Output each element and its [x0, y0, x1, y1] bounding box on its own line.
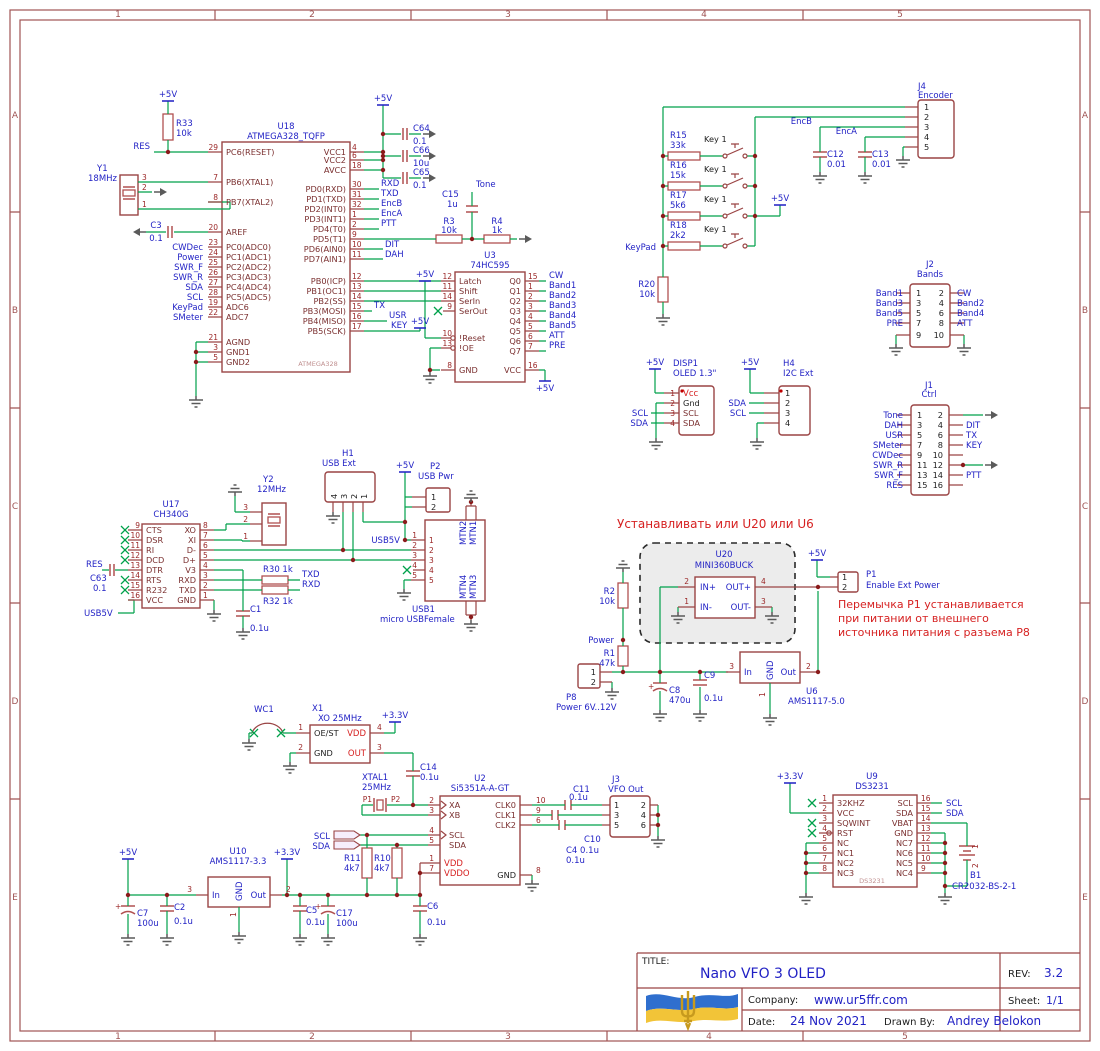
schematic-label: SDA [683, 418, 700, 428]
schematic-label: 2 [352, 220, 357, 229]
schematic-label: C2 [174, 903, 185, 913]
schematic-label: U6 [806, 687, 818, 697]
schematic-label: 2 [806, 662, 811, 671]
schematic-label: Key 1 [704, 164, 727, 174]
schematic-label: +3.3V [382, 711, 409, 721]
ukraine-flag-logo [646, 991, 738, 1028]
schematic-label: CWDec [172, 243, 203, 253]
schematic-label: 10k [441, 226, 457, 236]
schematic-label: ATT [549, 331, 565, 341]
schematic-label: 15 [921, 804, 931, 813]
schematic-label: REV: [1008, 969, 1031, 980]
schematic-label: SQWINT [837, 818, 871, 828]
schematic-label: 8 [939, 318, 944, 328]
schematic-label: PC4(ADC4) [226, 282, 271, 292]
schematic-label: RES [886, 481, 903, 491]
schematic-label: PC2(ADC2) [226, 262, 271, 272]
schematic-label: P1 [363, 795, 373, 804]
schematic-label: SCL [730, 409, 746, 419]
schematic-label: 2 [939, 288, 944, 298]
schematic-label: 22 [208, 308, 218, 317]
schematic-label: 1 [971, 844, 980, 849]
schematic-label: SerOut [459, 306, 488, 316]
schematic-label: PB0(ICP) [311, 276, 346, 286]
schematic-label: 100u [137, 919, 159, 929]
schematic-label: 3 [412, 551, 417, 560]
schematic-label: 18MHz [88, 174, 118, 184]
schematic-label: 14 [933, 470, 943, 480]
schematic-label: 9 [536, 806, 541, 815]
schematic-label: 3 [142, 173, 147, 182]
schematic-label: GND [235, 881, 245, 901]
schematic-label: 5 [917, 430, 922, 440]
resistor-r33 [163, 114, 173, 140]
schematic-label: PC6(RESET) [226, 147, 275, 157]
schematic-label: 24 Nov 2021 [790, 1014, 867, 1028]
schematic-label: DISP1 [673, 359, 698, 369]
schematic-label: C10 [584, 835, 601, 845]
schematic-label: GND [894, 828, 913, 838]
schematic-label: Date: [748, 1017, 775, 1028]
schematic-label: Band3 [549, 301, 576, 311]
schematic-label: PD0(RXD) [306, 184, 346, 194]
schematic-label: CTS [146, 525, 162, 535]
schematic-label: EncB [791, 117, 812, 127]
schematic-label: Band2 [957, 299, 984, 309]
schematic-label: DAH [385, 250, 404, 260]
schematic-label: 1 [203, 591, 208, 600]
schematic-label: Q1 [509, 286, 521, 296]
schematic-label: 12 [933, 460, 943, 470]
schematic-label: DIT [385, 240, 400, 250]
schematic-label: IN+ [700, 583, 716, 593]
schematic-label: 31 [352, 190, 362, 199]
schematic-label: EncA [836, 127, 857, 137]
schematic-label: MTN1 [469, 521, 479, 545]
schematic-label: 8 [822, 864, 827, 873]
schematic-label: GND [766, 660, 776, 680]
schematic-label: Band1 [876, 289, 903, 299]
schematic-label: 0.01 [872, 160, 891, 170]
schematic-label: R33 [176, 119, 193, 129]
schematic-label: TX [965, 431, 977, 441]
schematic-label: C65 [413, 168, 430, 178]
schematic-label: AMS1117-5.0 [788, 697, 845, 707]
schematic-label: 3 [429, 806, 434, 815]
schematic-label: C6 [427, 902, 438, 912]
schematic-label: R17 [670, 191, 687, 201]
schematic-label: XO [184, 525, 196, 535]
schematic-label: VDDO [444, 869, 470, 879]
schematic-label: C15 [442, 190, 459, 200]
schematic-label: 2 [822, 804, 827, 813]
schematic-label: 14 [352, 292, 362, 301]
schematic-label: AVCC [324, 165, 346, 175]
schematic-label: www.ur5ffr.com [814, 993, 908, 1007]
schematic-label: 6 [203, 541, 208, 550]
schematic-label: Q4 [509, 316, 521, 326]
schematic-label: 4 [641, 810, 646, 820]
schematic-label: PTT [966, 471, 982, 481]
schematic-label: NC7 [896, 838, 913, 848]
schematic-label: Bands [917, 270, 944, 280]
schematic-label: 32 [352, 200, 362, 209]
schematic-label: 7 [429, 864, 434, 873]
schematic-label: XTAL1 [362, 773, 388, 783]
schematic-label: 13 [352, 282, 362, 291]
schematic-label: C13 [872, 150, 889, 160]
schematic-label: SCL [898, 798, 914, 808]
schematic-label: 16 [933, 480, 943, 490]
schematic-label: D+ [183, 555, 196, 565]
schematic-label: H4 [783, 359, 795, 369]
schematic-label: 16 [528, 361, 538, 370]
schematic-label: 3 [785, 408, 790, 418]
schematic-label: + [648, 682, 654, 691]
schematic-label: +5V [396, 461, 415, 471]
schematic-label: USB Ext [322, 459, 357, 469]
schematic-label: U2 [474, 774, 486, 784]
schematic-label: 10 [130, 531, 140, 540]
schematic-label: TXD [178, 585, 196, 595]
schematic-label: MTN4 [459, 575, 469, 599]
schematic-label: 4 [822, 824, 827, 833]
schematic-label: 1 [352, 210, 357, 219]
schematic-label: NC6 [896, 848, 913, 858]
schematic-label: 4 [785, 418, 790, 428]
schematic-label: 16 [130, 591, 140, 600]
schematic-label: SMeter [173, 313, 204, 323]
schematic-label: 13 [917, 470, 927, 480]
schematic-label: SCL [449, 830, 465, 840]
schematic-label: Q6 [509, 336, 521, 346]
schematic-label: NC [837, 838, 849, 848]
schematic-label: USB Pwr [418, 472, 454, 482]
schematic-label: U18 [277, 122, 294, 132]
schematic-label: R11 [344, 854, 361, 864]
schematic-canvas: 1234512345ABCDEABCDE+5V+5V+5V+5V+5V+5V+5… [0, 0, 1100, 1051]
schematic-label: 470u [669, 696, 691, 706]
schematic-label: 4 [706, 1032, 712, 1042]
schematic-label: 1 [412, 531, 417, 540]
schematic-label: RST [837, 828, 854, 838]
schematic-label: Q0 [509, 276, 521, 286]
schematic-label: +5V [416, 270, 435, 280]
schematic-label: KEY [391, 321, 408, 331]
schematic-label: 1k [492, 226, 502, 236]
i2c-bus-entry-arrows [334, 831, 360, 849]
component-h4-i2c-ext [779, 386, 810, 435]
schematic-label: D [1082, 697, 1089, 707]
schematic-label: 0.1 [413, 181, 427, 191]
schematic-label: P1 [866, 570, 877, 580]
schematic-label: 2 [349, 494, 359, 499]
schematic-label: +5V [119, 848, 138, 858]
schematic-label: +5V [159, 90, 178, 100]
schematic-label: 1u [447, 200, 458, 210]
schematic-label: 14 [921, 814, 931, 823]
schematic-label: Encoder [918, 91, 953, 101]
resistor-r32 [262, 586, 288, 594]
schematic-label: RI [146, 545, 154, 555]
schematic-label: VCC [146, 595, 163, 605]
schematic-label: 3 [924, 122, 929, 132]
schematic-label: SWR_R [873, 461, 903, 471]
schematic-label: CWDec [872, 451, 903, 461]
schematic-label: 4 [412, 561, 417, 570]
schematic-label: 2 [938, 410, 943, 420]
schematic-label: +5V [808, 549, 827, 559]
schematic-label: 3 [916, 298, 921, 308]
schematic-label: DAH [884, 421, 903, 431]
schematic-label: VCC [504, 365, 521, 375]
schematic-label: 5 [916, 308, 921, 318]
schematic-label: 21 [208, 333, 218, 342]
schematic-label: 2 [842, 582, 847, 592]
schematic-label: PD3(INT1) [304, 214, 346, 224]
schematic-label: 10k [599, 597, 615, 607]
schematic-label: 2 [142, 183, 147, 192]
schematic-label: Power 6V..12V [556, 703, 617, 713]
schematic-label: TXD [380, 189, 399, 199]
schematic-label: VCC2 [324, 155, 346, 165]
schematic-label: 4 [329, 494, 339, 499]
schematic-label: 2 [309, 10, 315, 20]
schematic-label: XO 25MHz [318, 714, 362, 724]
schematic-label: TXD [301, 570, 320, 580]
schematic-label: In [212, 891, 220, 901]
schematic-label: 1 [243, 532, 248, 541]
schematic-label: C17 [336, 909, 353, 919]
schematic-label: 9 [921, 864, 926, 873]
schematic-label: C [12, 502, 18, 512]
schematic-label: Band4 [549, 311, 576, 321]
schematic-label: 29 [208, 143, 218, 152]
schematic-label: 47k [599, 659, 615, 669]
schematic-label: 30 [352, 180, 362, 189]
schematic-label: C9 [704, 671, 715, 681]
schematic-label: PD1(TXD) [306, 194, 346, 204]
schematic-label: RXD [302, 580, 321, 590]
schematic-label: 14 [442, 292, 452, 301]
schematic-label: 33k [670, 141, 686, 151]
schematic-label: Q2 [509, 296, 521, 306]
schematic-label: 3 [614, 810, 619, 820]
schematic-label: J2 [925, 260, 934, 270]
schematic-label: 6 [641, 820, 646, 830]
schematic-label: 14 [130, 571, 140, 580]
schematic-label: 10k [176, 129, 192, 139]
schematic-label: 5 [203, 551, 208, 560]
schematic-label: D [12, 697, 19, 707]
component-p8-power [578, 664, 600, 688]
schematic-label: Устанавливать или U20 или U6 [617, 517, 814, 531]
schematic-label: C64 [413, 124, 430, 134]
schematic-label: 3 [917, 420, 922, 430]
schematic-label: TX [373, 301, 385, 311]
schematic-label: 1 [591, 667, 596, 677]
schematic-label: 100u [336, 919, 358, 929]
schematic-label: 8 [203, 521, 208, 530]
schematic-label: E [12, 893, 18, 903]
schematic-label: J3 [611, 775, 620, 785]
schematic-label: Band5 [876, 309, 903, 319]
schematic-label: 0.1u [427, 918, 446, 928]
schematic-label: PB6(XTAL1) [226, 177, 273, 187]
schematic-label: R30 1k [263, 565, 293, 575]
schematic-label: CLK0 [495, 800, 516, 810]
schematic-label: CW [957, 289, 972, 299]
schematic-label: XB [449, 810, 461, 820]
resistor-r2 [618, 583, 628, 608]
schematic-label: 12 [442, 272, 452, 281]
schematic-label: 13 [130, 561, 140, 570]
schematic-label: R10 [374, 854, 391, 864]
schematic-label: SDA [946, 809, 964, 819]
schematic-label: +5V [771, 194, 790, 204]
schematic-label: SCL [632, 409, 648, 419]
schematic-label: 11 [442, 282, 452, 291]
schematic-label: 9 [352, 230, 357, 239]
schematic-label: AREF [226, 227, 247, 237]
schematic-label: ATMEGA328 [298, 360, 338, 368]
schematic-label: NC1 [837, 848, 854, 858]
schematic-label: 24 [208, 248, 218, 257]
schematic-label: USR [389, 311, 407, 321]
schematic-label: 1 [229, 912, 238, 917]
schematic-label: R1 [604, 649, 615, 659]
schematic-label: Key 1 [704, 134, 727, 144]
schematic-label: R20 [638, 280, 655, 290]
schematic-label: C12 [827, 150, 844, 160]
schematic-label: PB3(MOSI) [303, 306, 346, 316]
key-switch-2 [723, 174, 747, 188]
schematic-label: Gnd [683, 398, 700, 408]
schematic-label: 3 [213, 343, 218, 352]
schematic-label: OLED 1.3" [673, 369, 717, 379]
schematic-label: Out [781, 668, 797, 678]
schematic-label: 6 [822, 844, 827, 853]
schematic-label: C63 [90, 574, 107, 584]
schematic-label: 20 [208, 223, 218, 232]
schematic-label: 1 [359, 494, 369, 499]
schematic-label: RES [133, 142, 150, 152]
schematic-label: E [1082, 893, 1088, 903]
schematic-label: 2 [924, 112, 929, 122]
schematic-label: Ctrl [921, 390, 936, 400]
schematic-label: 2 [591, 677, 596, 687]
schematic-label: 15 [528, 272, 538, 281]
schematic-label: VFO Out [608, 785, 644, 795]
schematic-label: Band5 [549, 321, 576, 331]
schematic-label: 5 [822, 834, 827, 843]
resistor-r15 [668, 152, 700, 160]
schematic-label: 11 [130, 541, 140, 550]
schematic-label: GND [314, 748, 333, 758]
schematic-label: 1 [917, 410, 922, 420]
schematic-label: MTN2 [459, 521, 469, 545]
schematic-label: Enable Ext Power [866, 581, 940, 591]
schematic-label: 5k6 [670, 201, 686, 211]
schematic-label: Band4 [957, 309, 984, 319]
schematic-label: A [1082, 111, 1089, 121]
schematic-label: 15 [917, 480, 927, 490]
schematic-label: 26 [208, 268, 218, 277]
schematic-label: DIT [966, 421, 981, 431]
schematic-label: 13 [921, 824, 931, 833]
schematic-label: SDA [312, 842, 330, 852]
schematic-label: 1 [429, 854, 434, 863]
schematic-label: U9 [866, 772, 878, 782]
schematic-label: Andrey Belokon [947, 1014, 1041, 1028]
schematic-label: XI [188, 535, 196, 545]
schematic-label: micro USBFemale [380, 615, 455, 625]
schematic-label: Power [177, 253, 203, 263]
schematic-label: MINI360BUCK [695, 561, 754, 571]
component-y2-crystal [262, 503, 286, 545]
schematic-label: 0.1u [250, 624, 269, 634]
component-p1-jumper [838, 572, 858, 592]
schematic-label: 1/1 [1046, 994, 1064, 1007]
schematic-label: KeyPad [625, 243, 656, 253]
schematic-label: R15 [670, 131, 687, 141]
schematic-label: 10 [921, 854, 931, 863]
schematic-label: 5 [213, 353, 218, 362]
resistor-r4 [484, 235, 510, 243]
schematic-label: 25 [208, 258, 218, 267]
schematic-label: 1 [142, 200, 147, 209]
schematic-label: 4 [701, 10, 707, 20]
schematic-label: GND1 [226, 347, 250, 357]
schematic-label: NC3 [837, 868, 854, 878]
schematic-label: C [1082, 502, 1088, 512]
schematic-label: 10 [536, 796, 546, 805]
schematic-label: C7 [137, 909, 148, 919]
schematic-label: B1 [970, 871, 981, 881]
schematic-label: !Reset [459, 333, 486, 343]
schematic-label: 0.01 [827, 160, 846, 170]
schematic-label: PB2(SS) [313, 296, 346, 306]
schematic-label: 4k7 [374, 864, 390, 874]
schematic-label: 7 [528, 342, 533, 351]
schematic-label: DS3231 [859, 877, 885, 885]
schematic-label: DTR [146, 565, 163, 575]
schematic-label: Y1 [96, 164, 108, 174]
schematic-label: 1 [614, 800, 619, 810]
schematic-label: AGND [226, 337, 250, 347]
schematic-label: 3 [339, 494, 349, 499]
schematic-label: R16 [670, 161, 687, 171]
schematic-label: C14 [420, 763, 437, 773]
schematic-label: 5 [429, 576, 434, 585]
schematic-label: Power [588, 636, 614, 646]
schematic-label: 10 [934, 330, 944, 340]
schematic-label: 11 [921, 844, 931, 853]
schematic-label: 28 [208, 288, 218, 297]
schematic-label: 12 [130, 551, 140, 560]
schematic-label: 12MHz [257, 485, 287, 495]
schematic-label: источника питания с разъема P8 [838, 626, 1030, 639]
schematic-label: 5 [897, 10, 903, 20]
schematic-label: Band1 [549, 281, 576, 291]
resistor-r16 [668, 182, 700, 190]
schematic-label: DCD [146, 555, 164, 565]
schematic-label: 5 [429, 836, 434, 845]
schematic-label: 3 [203, 571, 208, 580]
schematic-label: 10k [639, 290, 655, 300]
schematic-label: 3 [187, 885, 192, 894]
schematic-label: 3 [243, 503, 248, 512]
